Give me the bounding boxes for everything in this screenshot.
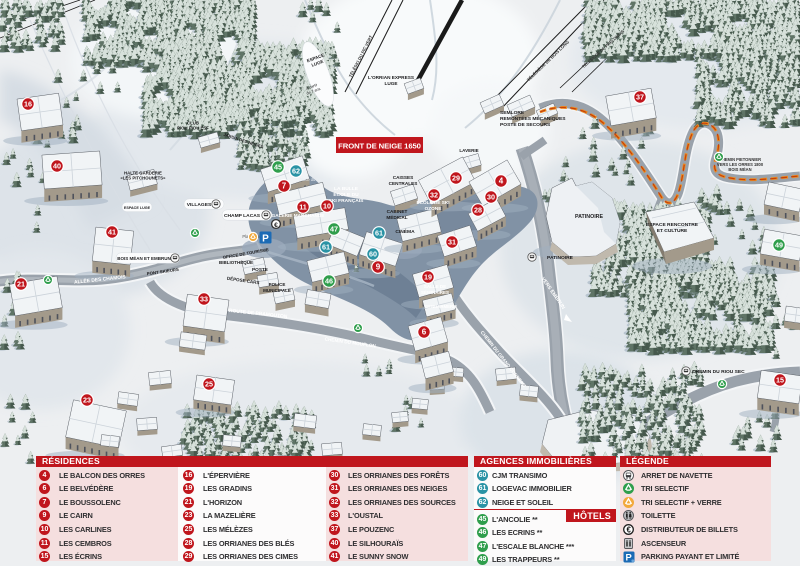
svg-text:62: 62 xyxy=(292,167,300,176)
svg-text:HALTE GARDERIE: HALTE GARDERIE xyxy=(124,170,162,175)
svg-text:29: 29 xyxy=(452,174,460,183)
svg-text:16: 16 xyxy=(24,100,32,109)
svg-text:LAVERIE: LAVERIE xyxy=(459,148,478,153)
svg-text:11: 11 xyxy=(299,203,307,212)
svg-text:CENTRALES: CENTRALES xyxy=(389,181,418,186)
svg-text:60: 60 xyxy=(369,250,377,259)
svg-text:MUNICIPALE: MUNICIPALE xyxy=(263,288,291,293)
svg-text:61: 61 xyxy=(375,229,383,238)
svg-text:37: 37 xyxy=(636,93,644,102)
svg-text:CABINET: CABINET xyxy=(387,209,408,214)
svg-text:6: 6 xyxy=(422,328,427,337)
svg-text:45: 45 xyxy=(274,163,282,172)
svg-text:41: 41 xyxy=(108,228,116,237)
svg-text:4: 4 xyxy=(499,177,504,186)
svg-text:49: 49 xyxy=(775,241,783,250)
svg-text:POSTE: POSTE xyxy=(252,267,268,272)
svg-text:SKI FRANÇAIS: SKI FRANÇAIS xyxy=(329,198,365,204)
svg-text:PIOU PIOU ESF: PIOU PIOU ESF xyxy=(177,126,209,131)
svg-text:ESPACE LUGE: ESPACE LUGE xyxy=(124,206,151,210)
svg-text:€: € xyxy=(627,525,632,534)
svg-text:VILLAGES: VILLAGES xyxy=(187,202,212,208)
svg-text:25: 25 xyxy=(205,380,213,389)
svg-text:LA BULLE: LA BULLE xyxy=(334,186,359,192)
svg-text:«LES PITCHOUNETS»: «LES PITCHOUNETS» xyxy=(120,176,166,181)
svg-text:40: 40 xyxy=(53,162,61,171)
svg-text:BOIS MÉAN ET EMBRUN: BOIS MÉAN ET EMBRUN xyxy=(117,254,171,261)
svg-text:SEMLORE: SEMLORE xyxy=(500,110,525,116)
svg-text:CHAMP LACAS: CHAMP LACAS xyxy=(224,213,261,219)
svg-text:P: P xyxy=(262,234,269,245)
svg-text:CAISSES: CAISSES xyxy=(393,175,414,180)
svg-text:LUGE: LUGE xyxy=(384,81,397,86)
svg-text:FRONT DE NEIGE 1650: FRONT DE NEIGE 1650 xyxy=(338,141,421,150)
svg-text:7: 7 xyxy=(282,182,287,191)
svg-text:SALLE DE: SALLE DE xyxy=(424,284,446,289)
svg-text:SÉMINAIRES: SÉMINAIRES xyxy=(421,288,449,295)
svg-text:46: 46 xyxy=(325,277,333,286)
svg-text:PATINOIRE: PATINOIRE xyxy=(575,214,604,220)
svg-text:POSTE DE SECOURS: POSTE DE SECOURS xyxy=(500,122,551,128)
svg-text:GENDARMERIE: GENDARMERIE xyxy=(425,304,457,309)
svg-text:POLICE: POLICE xyxy=(269,282,286,287)
svg-text:ET CULTURE: ET CULTURE xyxy=(657,228,688,234)
svg-text:31: 31 xyxy=(448,238,456,247)
svg-text:21: 21 xyxy=(17,280,25,289)
svg-text:23: 23 xyxy=(83,396,91,405)
svg-text:L'ORRIAN EXPRESS: L'ORRIAN EXPRESS xyxy=(368,75,414,80)
svg-text:Place du Festival: Place du Festival xyxy=(299,177,330,182)
svg-text:61: 61 xyxy=(322,243,330,252)
svg-text:GALERIE MARCHANDE: GALERIE MARCHANDE xyxy=(272,213,325,218)
svg-text:9: 9 xyxy=(376,263,381,272)
svg-text:19: 19 xyxy=(424,273,432,282)
svg-text:30: 30 xyxy=(487,193,495,202)
svg-text:MÉDICAL: MÉDICAL xyxy=(386,213,407,220)
svg-text:CLUB: CLUB xyxy=(187,120,199,125)
svg-text:10: 10 xyxy=(323,202,331,211)
svg-text:15: 15 xyxy=(776,376,784,385)
svg-text:P: P xyxy=(625,551,631,562)
svg-text:28: 28 xyxy=(474,206,482,215)
svg-text:ESPACE RENCONTRE: ESPACE RENCONTRE xyxy=(646,222,699,228)
svg-text:32: 32 xyxy=(430,191,438,200)
svg-text:€: € xyxy=(274,222,278,229)
svg-text:47: 47 xyxy=(330,225,338,234)
svg-text:CHEMIN DU RIOU SEC: CHEMIN DU RIOU SEC xyxy=(692,369,745,375)
svg-text:BOIS MÉAN: BOIS MÉAN xyxy=(728,167,751,172)
svg-text:PATINOIRE: PATINOIRE xyxy=(547,255,574,261)
svg-text:OZONE: OZONE xyxy=(425,206,442,211)
svg-text:33: 33 xyxy=(200,295,208,304)
